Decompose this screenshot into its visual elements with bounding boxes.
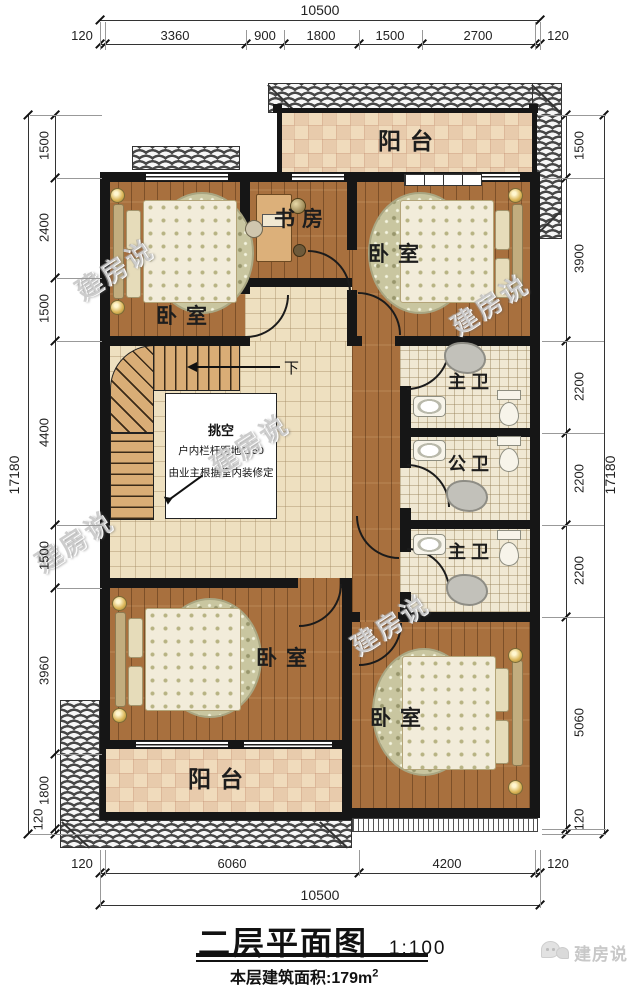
toilet-bowl [499,402,519,426]
balcony-top-rail-left [277,108,282,172]
label-balcony-bottom: 阳台 [150,760,290,794]
bedside-lamp [110,300,125,315]
dim-left-total: 17180 [6,445,22,505]
dim-ext [359,30,360,50]
dim-ext [542,433,604,434]
bed-blanket [145,608,241,711]
toilet-tank [497,436,521,446]
wall-bedroom-br-bottom [345,808,540,818]
label-bath-bottom: 主卫 [438,538,504,564]
window-bedroom-bl-2 [244,741,332,748]
dim-ext [105,850,106,876]
dim-right-5: 5060 [572,693,587,753]
dim-ext [100,850,101,908]
dim-top-6: 120 [540,28,576,43]
dim-line [566,115,567,834]
bedside-lamp [508,780,523,795]
label-bedroom-tl: 卧室 [144,300,228,330]
dim-ext [57,341,102,342]
dim-top-4: 1500 [362,28,418,43]
dim-top-0: 120 [64,28,100,43]
dim-line [100,905,540,906]
wall-balcony-left [100,745,106,820]
window-top-bedroom-tl [146,173,228,181]
dim-left-2: 1500 [37,279,52,339]
dim-left-7: 120 [31,790,46,850]
balcony-top-rail [277,108,537,113]
dim-right-4: 2200 [572,541,587,601]
dim-right-1: 3900 [572,229,587,289]
dim-right-total: 17180 [602,445,618,505]
bed-headboard [512,660,523,766]
dim-left-4: 1500 [37,526,52,586]
bed-pillow [494,720,509,764]
floor-area-sup: 2 [372,968,378,980]
bed-headboard [115,612,126,707]
label-study: 书房 [252,203,352,233]
label-bath-top: 主卫 [438,368,504,394]
dim-ext [57,278,102,279]
bedside-lamp [508,188,523,203]
wall-corridor-bottom-a [100,578,298,588]
floor-plan: 下 挑空 户内栏杆距地1150 由业主根据室内装修定 [0,0,640,989]
dim-right-0: 1500 [572,116,587,176]
roof-top-left [132,146,240,170]
dim-ext [538,115,606,116]
sink [413,396,446,417]
dim-ext [542,834,606,835]
wall-hall-stub [347,336,362,346]
desk-mug [293,244,306,257]
dim-left-1: 2400 [37,198,52,258]
dim-ext [284,30,285,50]
bedside-lamp [112,596,127,611]
bedside-lamp [508,648,523,663]
dim-bottom-1: 6060 [204,856,260,871]
window-top-study [292,173,344,181]
dim-left-0: 1500 [37,116,52,176]
stair-direction-line [196,366,280,368]
window-bedroom-bl-1 [136,741,228,748]
dim-ext [30,115,102,116]
dim-ext [542,829,606,830]
bed-pillow [128,666,143,706]
dim-ext [359,850,360,876]
logo-icon-eye [552,948,555,951]
dim-left-5: 3960 [37,641,52,701]
door-study [307,250,351,294]
dim-top-3: 1800 [293,28,349,43]
dim-line [100,20,540,21]
railing-bottom-right [352,818,538,832]
dim-ext [57,525,102,526]
dim-ext [542,341,604,342]
dim-line [55,115,56,834]
dim-ext [105,22,106,50]
floor-area-note: 本层建筑面积:179m2 [230,964,378,988]
hall-wood-floor [352,336,400,622]
bedside-lamp [112,708,127,723]
dim-ext [535,22,536,50]
bed-pillow [128,618,143,658]
wall-balcony-bottom [100,812,352,820]
dim-top-1: 3360 [147,28,203,43]
dim-ext [57,588,102,589]
logo-text: 建房说 [574,940,628,965]
dim-right-6: 120 [572,790,587,850]
dim-top-2: 900 [247,28,283,43]
dim-ext [422,30,423,50]
wall-bath-divider-2 [405,520,540,529]
dim-ext [542,178,604,179]
wall-bedroom-tl-bottom [100,336,250,346]
label-bedroom-bl: 卧室 [244,642,328,672]
balcony-rail-post [529,104,538,113]
dim-line [28,115,29,834]
dim-line [100,873,540,874]
dim-top-total: 10500 [280,2,360,18]
wall-bath-left-3 [400,508,411,552]
dim-left-3: 4400 [37,403,52,463]
title-underline-thin [196,960,428,962]
balcony-rail-post [273,104,282,113]
wall-mid-divider [342,578,352,816]
label-balcony-top: 阳台 [330,122,490,156]
plan-title: 二层平面图 1:100 [198,918,446,964]
dim-bottom-2: 4200 [419,856,475,871]
dim-ext [246,30,247,50]
bedside-lamp [110,188,125,203]
stair-down-label: 下 [284,357,299,378]
dim-right-3: 2200 [572,449,587,509]
dim-ext [540,22,541,50]
bed-blanket [143,200,237,303]
dim-top-5: 2700 [450,28,506,43]
wall-bath-left-1 [400,336,411,346]
title-underline-thick [196,953,428,957]
bed-pillow [495,210,510,250]
dim-bottom-total: 10500 [280,887,360,903]
dim-ext [100,22,101,50]
logo-icon-eye [546,948,549,951]
door-bedroom-tl [245,294,289,338]
door-bedroom-bl [298,583,342,627]
dim-ext [542,525,604,526]
door-hall [356,515,400,559]
dim-ext [535,850,536,876]
balcony-top-rail-right [532,108,537,172]
stair-direction-arrow [187,362,197,372]
dim-right-2: 2200 [572,357,587,417]
floor-area-value: 179m [331,970,372,987]
wall-study-right-b [347,290,357,336]
floor-area-label: 本层建筑面积: [230,970,331,987]
roof-bottom-band [60,820,352,848]
wall-right [530,172,540,818]
closet [404,174,482,186]
logo-icon-bubble [556,947,569,959]
wall-bath-left-2 [400,386,411,468]
dim-line [100,44,540,45]
dim-ext [540,850,541,908]
logo: 建房说 [541,938,637,964]
bed-pillow [494,668,509,712]
dim-ext [542,617,604,618]
dim-bottom-0: 120 [64,856,100,871]
dim-bottom-3: 120 [540,856,576,871]
label-bedroom-tr: 卧室 [356,238,440,268]
stairs-lower-flight [110,433,154,520]
dim-ext [30,834,102,835]
label-bath-mid: 公卫 [438,450,504,476]
label-bedroom-br: 卧室 [358,702,442,732]
dim-ext [57,754,102,755]
dim-ext [57,178,102,179]
